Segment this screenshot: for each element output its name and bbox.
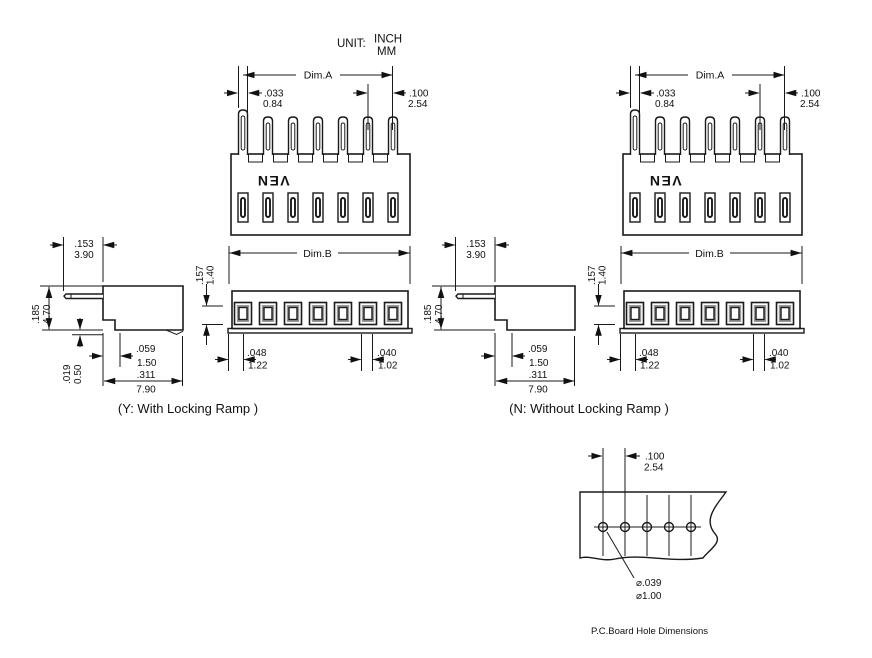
pcb-hole-detail: .100 2.54 ⌀.039 ⌀1.00 P.C.Board Hole Dim… bbox=[580, 448, 726, 637]
unit-mm: MM bbox=[377, 46, 396, 58]
side-view bbox=[64, 286, 183, 330]
window-height-inch: .157 bbox=[195, 265, 206, 285]
pitch-mm: 2.54 bbox=[408, 99, 428, 110]
standoff-mm: 0.50 bbox=[73, 364, 84, 384]
window-opening bbox=[339, 308, 347, 320]
unit-note: UNIT: INCH MM bbox=[337, 34, 402, 59]
side-pin bbox=[64, 294, 103, 299]
body-depth-mm: 7.90 bbox=[136, 385, 156, 396]
hole-dia-mm: ⌀1.00 bbox=[636, 591, 662, 602]
pcb-pitch-inch: .100 bbox=[645, 452, 665, 463]
brand-logo: VEN bbox=[256, 173, 289, 189]
hole-dia-inch: ⌀.039 bbox=[636, 578, 662, 589]
connector-assembly-n-variant bbox=[423, 66, 821, 396]
front-windows bbox=[235, 303, 402, 325]
connector-assembly: VEN bbox=[31, 66, 429, 396]
pin-protrusion-mm: 3.90 bbox=[74, 250, 94, 261]
standoff-inch: .019 bbox=[62, 364, 73, 384]
connector-drawing: UNIT: INCH MM bbox=[0, 0, 872, 658]
side-body bbox=[103, 286, 183, 330]
slot-width-mm: 1.02 bbox=[378, 361, 398, 372]
pcb-pitch-mm: 2.54 bbox=[644, 463, 664, 474]
window-height-label: .157 1.40 bbox=[195, 265, 217, 285]
step-mm: 1.50 bbox=[137, 358, 157, 369]
dim-b-label: Dim.B bbox=[303, 248, 332, 260]
window-opening bbox=[239, 308, 247, 320]
drawing-sheet: UNIT: INCH MM bbox=[0, 0, 872, 658]
body-height-inch: .185 bbox=[31, 304, 42, 324]
unit-label: UNIT: bbox=[337, 38, 366, 50]
window-opening bbox=[289, 308, 297, 320]
window-opening bbox=[389, 308, 397, 320]
pin-width-mm: 0.84 bbox=[263, 99, 283, 110]
body-height-label: .185 4.70 bbox=[31, 304, 53, 324]
pin-protrusion-inch: .153 bbox=[74, 239, 94, 250]
top-view: VEN bbox=[231, 110, 410, 235]
window-opening bbox=[264, 308, 272, 320]
edge-to-slot-inch: .048 bbox=[247, 348, 267, 359]
front-view bbox=[228, 291, 412, 333]
pins bbox=[239, 110, 398, 155]
pin bbox=[239, 110, 248, 155]
window-height-mm: 1.40 bbox=[206, 265, 217, 285]
pitch-inch: .100 bbox=[409, 89, 429, 100]
window-opening bbox=[364, 308, 372, 320]
edge-to-slot-mm: 1.22 bbox=[248, 361, 268, 372]
body-height-mm: 4.70 bbox=[42, 304, 53, 324]
unit-inch: INCH bbox=[374, 34, 402, 46]
step-inch: .059 bbox=[136, 344, 156, 355]
caption-with-locking-ramp: (Y: With Locking Ramp ) bbox=[118, 401, 258, 416]
standoff-label: .019 0.50 bbox=[62, 364, 84, 384]
window-opening bbox=[314, 308, 322, 320]
body-depth-inch: .311 bbox=[137, 370, 156, 381]
pin-width-inch: .033 bbox=[264, 89, 284, 100]
caption-without-locking-ramp: (N: Without Locking Ramp ) bbox=[509, 401, 669, 416]
dim-a-label: Dim.A bbox=[304, 70, 333, 82]
pcb-caption: P.C.Board Hole Dimensions bbox=[591, 626, 708, 637]
slot-width-inch: .040 bbox=[377, 348, 397, 359]
